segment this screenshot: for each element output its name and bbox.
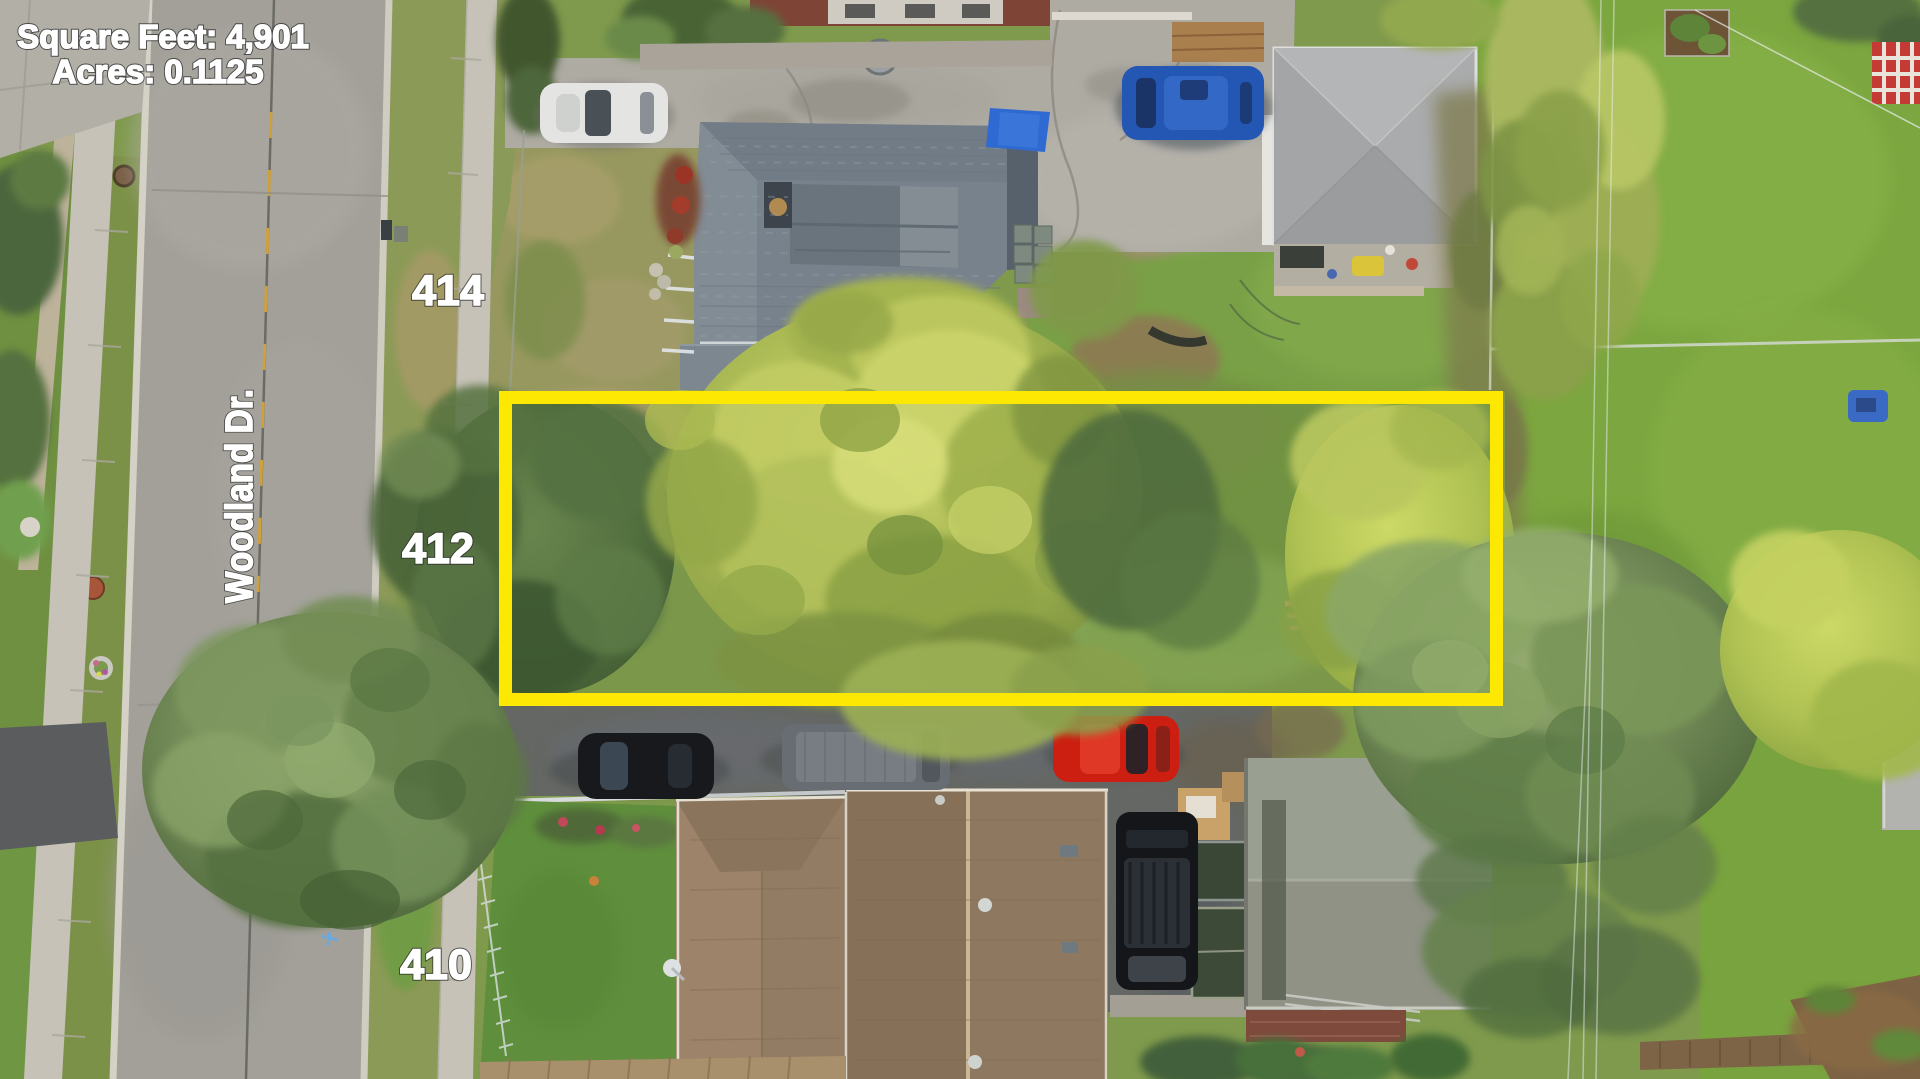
svg-text:Acres: 0.1125: Acres: 0.1125 (52, 53, 263, 90)
svg-text:412: 412 (402, 525, 474, 573)
svg-text:410: 410 (400, 941, 472, 989)
svg-text:Square Feet: 4,901: Square Feet: 4,901 (17, 18, 309, 55)
svg-text:Woodland Dr.: Woodland Dr. (219, 389, 261, 603)
svg-text:414: 414 (412, 267, 484, 315)
